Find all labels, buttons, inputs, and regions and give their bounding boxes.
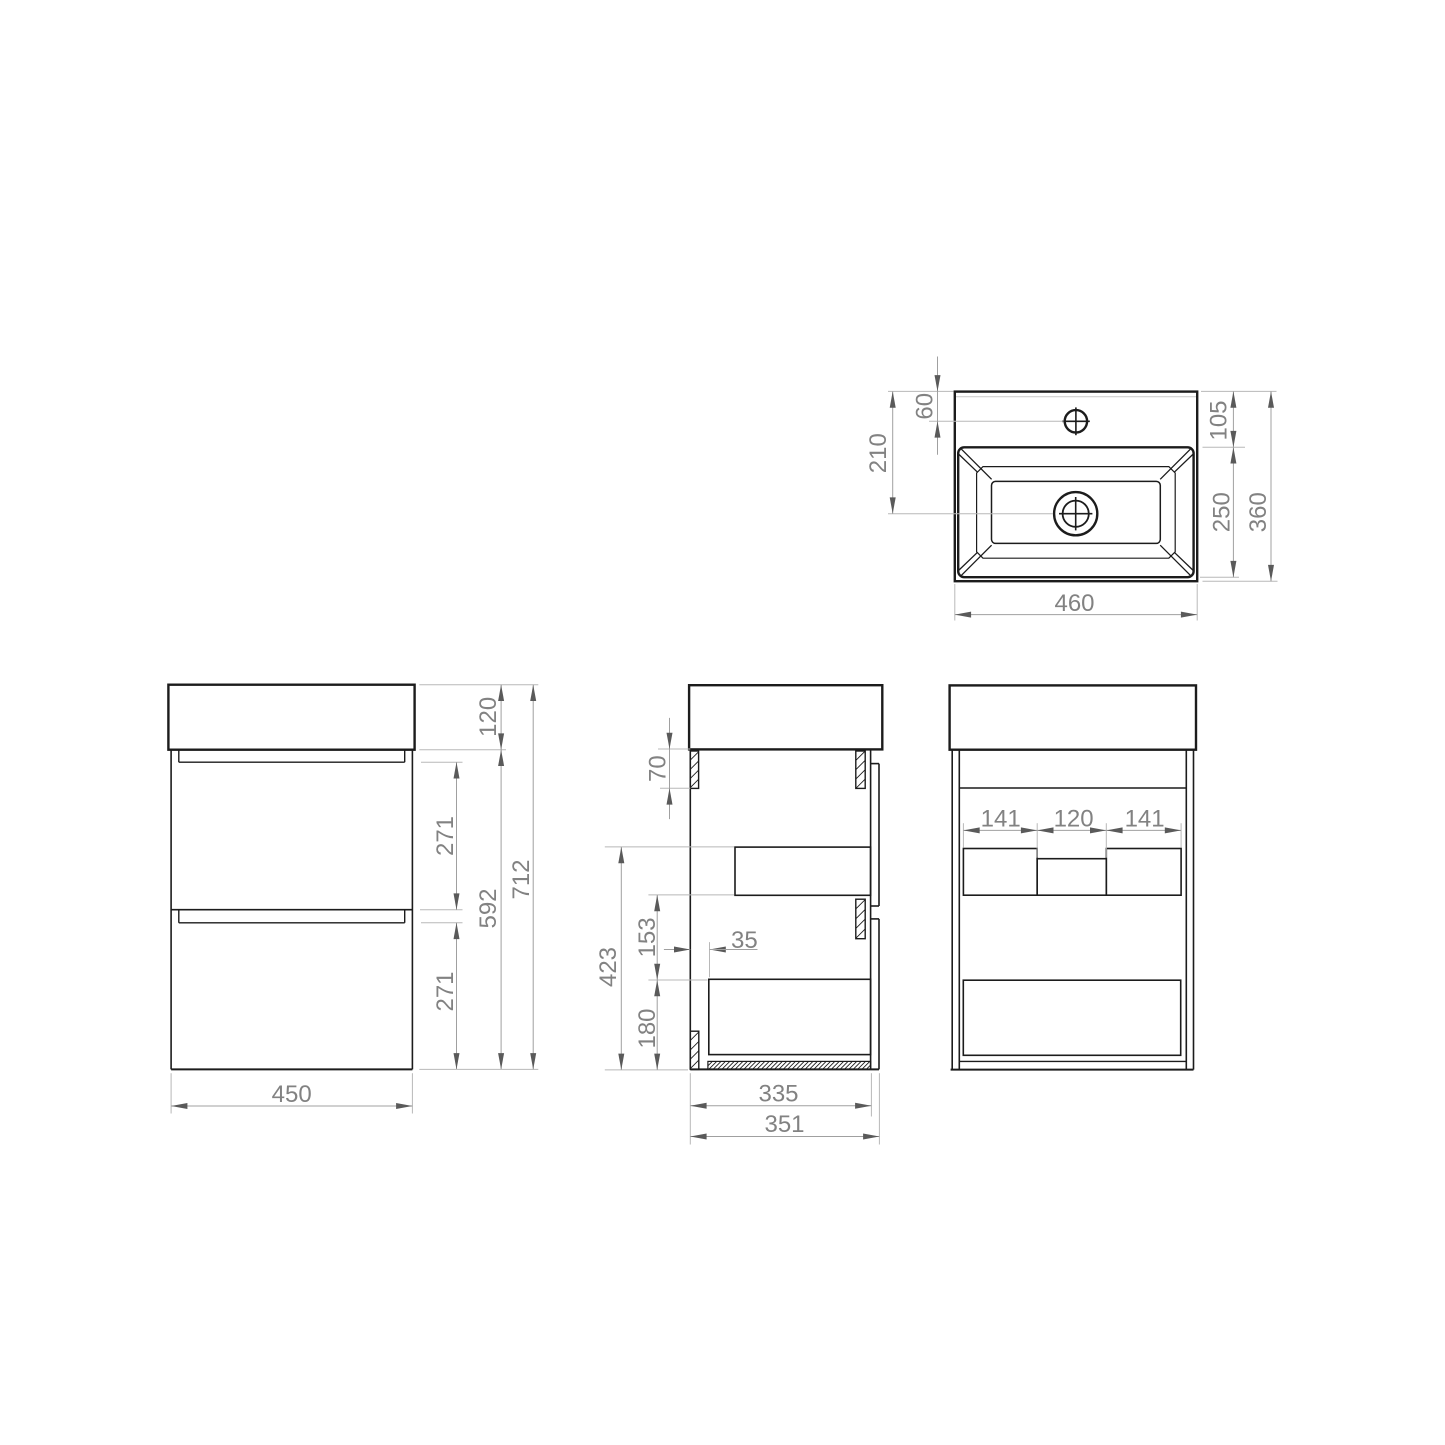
svg-text:271: 271 — [432, 816, 459, 856]
svg-text:210: 210 — [865, 433, 892, 473]
svg-text:460: 460 — [1054, 590, 1094, 617]
svg-text:423: 423 — [595, 947, 622, 987]
svg-text:450: 450 — [272, 1081, 312, 1108]
svg-text:60: 60 — [911, 393, 938, 420]
svg-text:592: 592 — [475, 888, 502, 928]
svg-text:271: 271 — [432, 971, 459, 1011]
svg-text:712: 712 — [508, 859, 535, 899]
svg-text:180: 180 — [634, 1008, 661, 1048]
svg-text:351: 351 — [764, 1111, 804, 1138]
svg-text:141: 141 — [981, 805, 1021, 832]
svg-text:360: 360 — [1245, 492, 1272, 532]
svg-text:141: 141 — [1125, 805, 1165, 832]
svg-text:120: 120 — [475, 697, 502, 737]
svg-text:335: 335 — [758, 1080, 798, 1107]
svg-text:70: 70 — [645, 755, 672, 782]
svg-text:250: 250 — [1209, 492, 1236, 532]
svg-text:153: 153 — [634, 917, 661, 957]
svg-text:35: 35 — [731, 927, 758, 954]
svg-text:105: 105 — [1205, 400, 1232, 440]
svg-text:120: 120 — [1054, 805, 1094, 832]
